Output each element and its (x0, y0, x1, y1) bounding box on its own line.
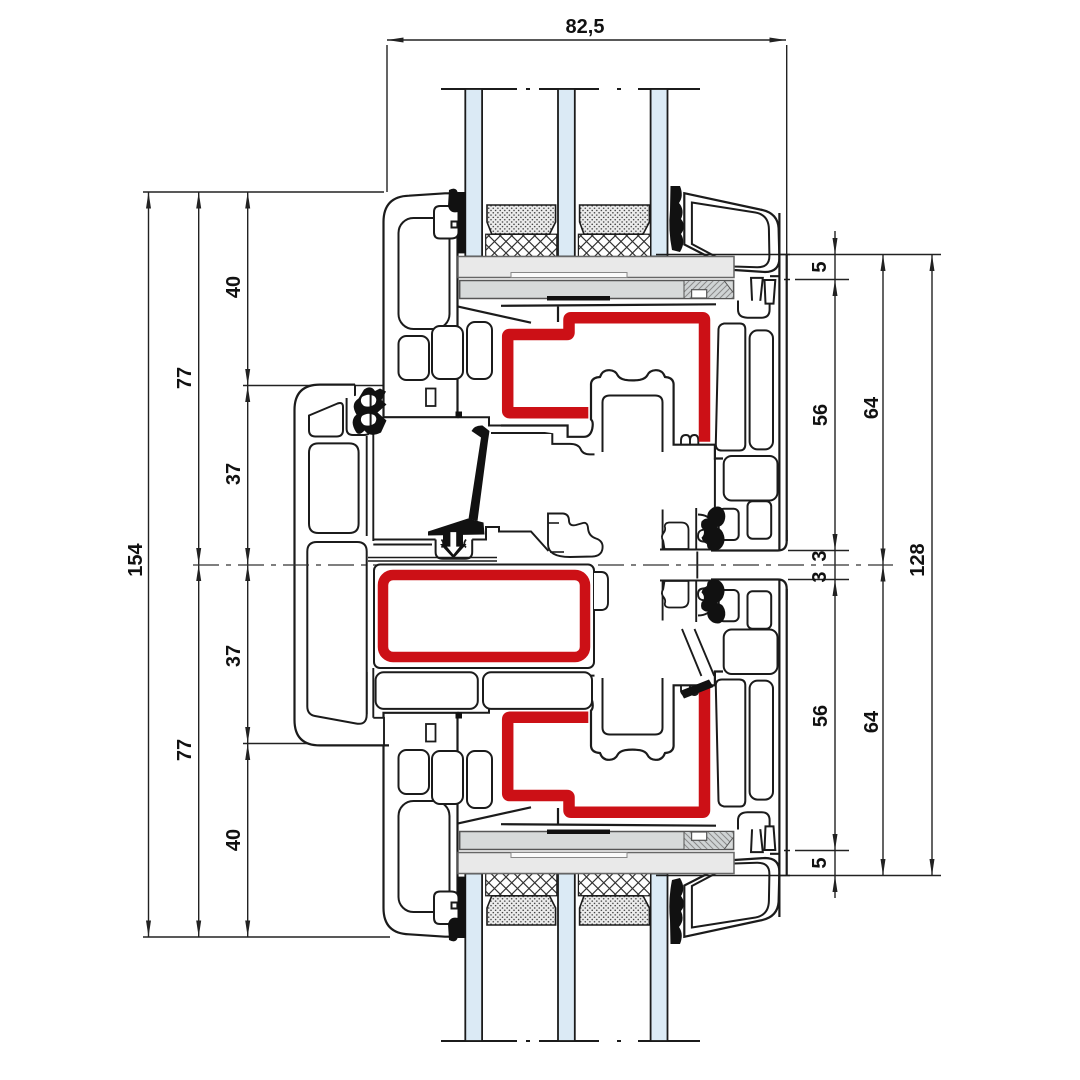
svg-text:77: 77 (174, 367, 196, 389)
svg-text:40: 40 (223, 829, 245, 851)
svg-text:56: 56 (810, 705, 832, 727)
svg-text:3: 3 (809, 571, 831, 582)
svg-text:40: 40 (223, 276, 245, 298)
svg-text:37: 37 (223, 645, 245, 667)
svg-text:64: 64 (861, 396, 883, 419)
svg-text:56: 56 (810, 404, 832, 426)
svg-text:5: 5 (809, 857, 831, 868)
svg-text:3: 3 (809, 550, 831, 561)
svg-text:154: 154 (125, 542, 147, 576)
svg-text:37: 37 (223, 463, 245, 485)
svg-text:128: 128 (907, 543, 929, 576)
svg-text:64: 64 (861, 710, 883, 733)
svg-text:5: 5 (809, 261, 831, 272)
svg-text:82,5: 82,5 (566, 16, 605, 38)
svg-text:77: 77 (174, 739, 196, 761)
